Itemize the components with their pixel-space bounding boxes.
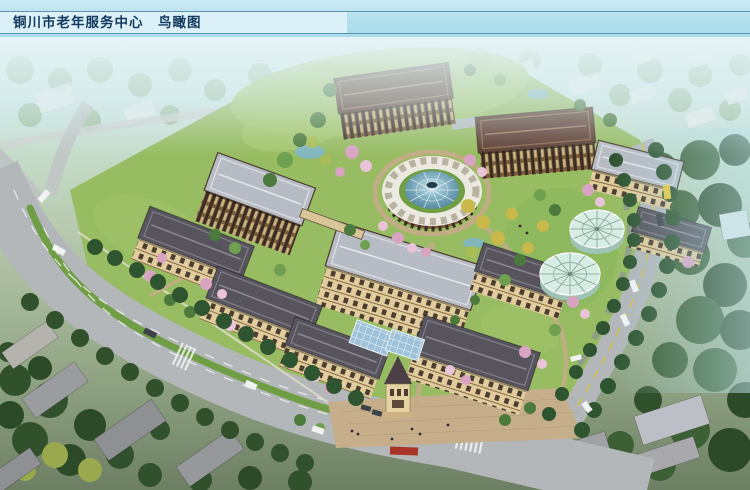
red-monument-sign xyxy=(390,447,418,456)
entrance-tower xyxy=(386,384,410,414)
scene-svg xyxy=(0,0,750,490)
title-line-bottom xyxy=(0,33,750,34)
title-strip: 铜川市老年服务中心 鸟瞰图 xyxy=(0,12,347,33)
title-bar: 铜川市老年服务中心 鸟瞰图 xyxy=(0,0,750,37)
east-haze xyxy=(612,128,750,393)
page-title: 铜川市老年服务中心 鸟瞰图 xyxy=(0,12,347,33)
glass-pavilion-2 xyxy=(540,253,600,301)
birdseye-rendering: 铜川市老年服务中心 鸟瞰图 xyxy=(0,0,750,490)
